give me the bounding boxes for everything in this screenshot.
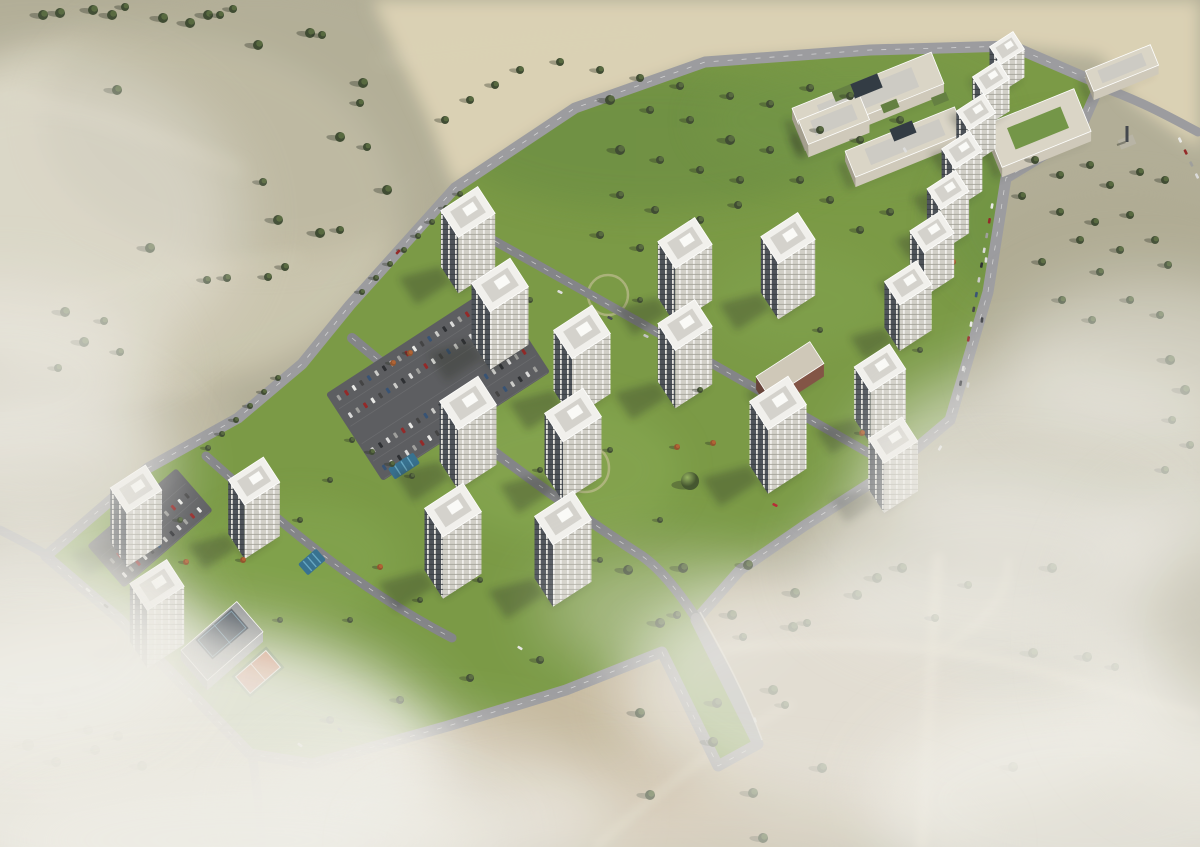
light-veil	[0, 0, 1200, 847]
render-canvas	[0, 0, 1200, 847]
aerial-masterplan-render	[0, 0, 1200, 847]
fog-layer	[0, 0, 1200, 847]
